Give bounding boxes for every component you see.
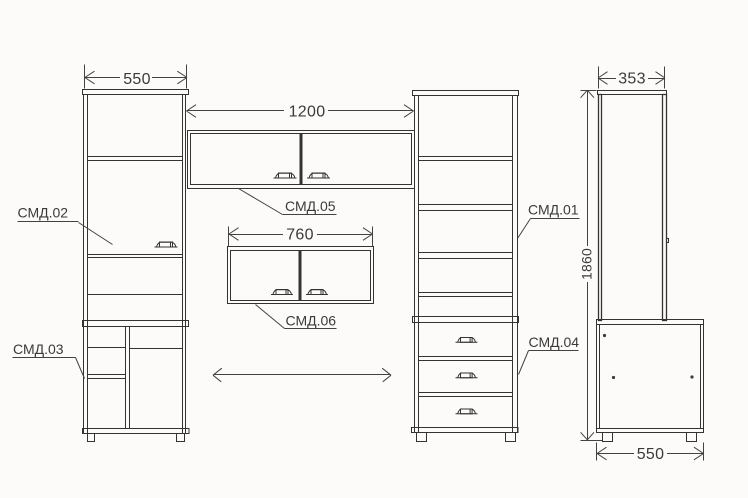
svg-text:760: 760 bbox=[286, 227, 314, 244]
svg-text:550: 550 bbox=[637, 446, 665, 463]
svg-text:СМД.05: СМД.05 bbox=[285, 198, 336, 214]
svg-text:353: 353 bbox=[618, 71, 646, 88]
svg-text:1200: 1200 bbox=[289, 104, 326, 121]
svg-text:СМД.03: СМД.03 bbox=[13, 341, 64, 357]
svg-text:СМД.04: СМД.04 bbox=[529, 334, 580, 350]
svg-text:СМД.02: СМД.02 bbox=[18, 205, 69, 221]
svg-text:1860: 1860 bbox=[579, 248, 595, 280]
svg-text:550: 550 bbox=[123, 71, 151, 88]
svg-text:СМД.01: СМД.01 bbox=[528, 202, 579, 218]
svg-text:СМД.06: СМД.06 bbox=[286, 313, 337, 329]
